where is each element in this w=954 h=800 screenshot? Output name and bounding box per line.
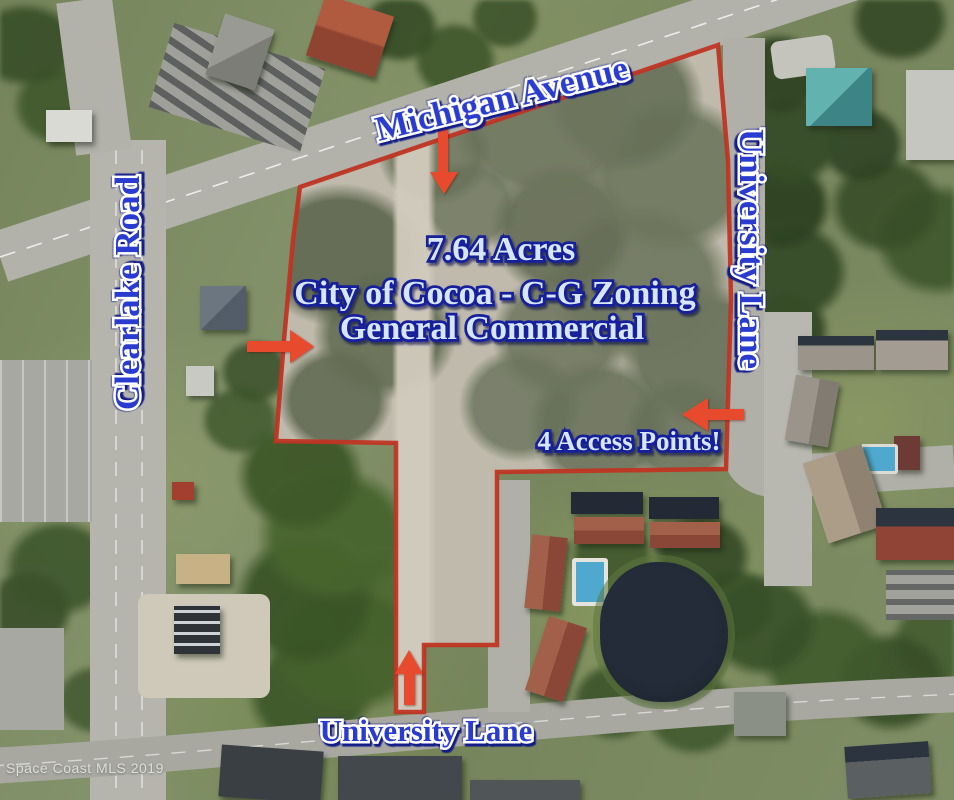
parcel-boundary xyxy=(276,45,731,712)
access-points-label: 4 Access Points! xyxy=(538,426,721,456)
annotation-layer: Michigan Avenue Clearlake Road Universit… xyxy=(0,0,954,800)
university-lane-right-label: University Lane xyxy=(732,129,771,369)
mls-watermark: Space Coast MLS 2019 xyxy=(6,760,164,776)
university-lane-bottom-label: University Lane xyxy=(320,713,533,748)
aerial-listing-map: Michigan Avenue Clearlake Road Universit… xyxy=(0,0,954,800)
clearlake-road-label: Clearlake Road xyxy=(108,175,147,410)
parcel-acreage-label: 7.64 Acres xyxy=(427,231,576,268)
parcel-zoning-description-label: General Commercial xyxy=(340,310,644,347)
parcel-zoning-label: City of Cocoa - C-G Zoning xyxy=(294,275,695,312)
